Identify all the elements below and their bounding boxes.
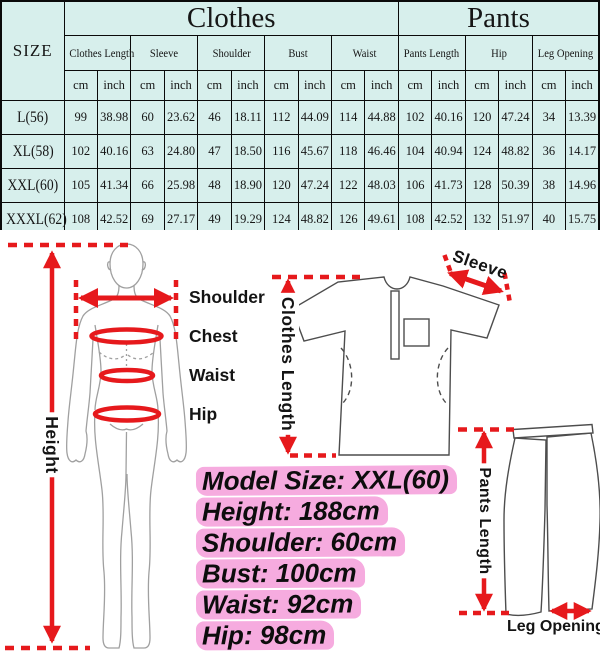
chest-label: Chest xyxy=(189,326,238,346)
unit-header: inch xyxy=(499,71,532,101)
body-crotch xyxy=(110,424,143,430)
table-row: XL(58) 102 40.16 63 24.80 47 18.50 116 4… xyxy=(1,135,599,169)
col-header-pants-length: Pants Length xyxy=(398,36,465,71)
cell: 124 xyxy=(465,135,498,169)
cell: 45.67 xyxy=(298,135,331,169)
shirt-placket xyxy=(391,291,399,359)
col-header-label: Hip xyxy=(491,46,507,61)
clothes-group-header: Clothes xyxy=(64,1,398,36)
cell: 44.88 xyxy=(365,101,398,135)
col-header-label: Shoulder xyxy=(212,46,250,61)
row-size-text: XXL(60) xyxy=(7,177,58,195)
pants-outline xyxy=(504,425,600,616)
waist-label: Waist xyxy=(189,365,235,385)
col-header-label: Bust xyxy=(288,46,307,61)
cell: 25.98 xyxy=(164,169,197,203)
unit-header: cm xyxy=(332,71,365,101)
unit-header: inch xyxy=(566,71,599,101)
cell: 41.34 xyxy=(97,169,130,203)
cell: 105 xyxy=(64,169,97,203)
cell: 46 xyxy=(198,101,231,135)
shirt-pocket xyxy=(404,319,429,346)
cell: 66 xyxy=(131,169,164,203)
col-header-label: Waist xyxy=(353,46,377,61)
col-header-bust: Bust xyxy=(265,36,332,71)
cell: 18.11 xyxy=(231,101,264,135)
unit-header: cm xyxy=(465,71,498,101)
pants-leg-left xyxy=(504,438,546,615)
cell: 40.94 xyxy=(432,135,465,169)
cell: 14.17 xyxy=(566,135,599,169)
cell: 60 xyxy=(131,101,164,135)
col-header-label: Pants Length xyxy=(404,46,459,61)
cell: 106 xyxy=(398,169,431,203)
pants-leg-right xyxy=(547,433,600,611)
cell: 23.62 xyxy=(164,101,197,135)
col-header-waist: Waist xyxy=(332,36,399,71)
size-chart-table: SIZE Clothes Pants Clothes Length Sleeve… xyxy=(0,0,600,238)
cell: 13.39 xyxy=(566,101,599,135)
clothes-length-label: Clothes Length xyxy=(277,293,299,435)
hip-label: Hip xyxy=(189,404,217,424)
unit-header: inch xyxy=(432,71,465,101)
cell: 120 xyxy=(465,101,498,135)
cell: 47 xyxy=(198,135,231,169)
table-unit-header-row: cm inch cm inch cm inch cm inch cm inch … xyxy=(1,71,599,101)
col-header-leg-opening: Leg Opening xyxy=(532,36,599,71)
cell: 38 xyxy=(532,169,565,203)
shirt-outline xyxy=(292,277,499,455)
size-column-header: SIZE xyxy=(1,1,64,101)
cell: 34 xyxy=(532,101,565,135)
unit-header: cm xyxy=(198,71,231,101)
unit-header: cm xyxy=(265,71,298,101)
cell: 47.24 xyxy=(298,169,331,203)
chest-ellipse xyxy=(92,330,162,343)
table-row: XXL(60) 105 41.34 66 25.98 48 18.90 120 … xyxy=(1,169,599,203)
unit-header: inch xyxy=(298,71,331,101)
row-size-text: XXXL(62) xyxy=(6,211,67,229)
cell: 63 xyxy=(131,135,164,169)
body-leg-right xyxy=(127,412,158,648)
model-info-line: Shoulder: 60cm xyxy=(196,527,405,557)
table-group-header-row: SIZE Clothes Pants xyxy=(1,1,599,36)
cell: 18.90 xyxy=(231,169,264,203)
col-header-shoulder: Shoulder xyxy=(198,36,265,71)
unit-header: cm xyxy=(64,71,97,101)
row-size-label: XL(58) xyxy=(1,135,64,169)
col-header-sleeve: Sleeve xyxy=(131,36,198,71)
unit-header: inch xyxy=(97,71,130,101)
unit-header: cm xyxy=(131,71,164,101)
shoulder-label: Shoulder xyxy=(189,287,265,307)
cell: 102 xyxy=(398,101,431,135)
cell: 114 xyxy=(332,101,365,135)
pants-length-label: Pants Length xyxy=(473,463,495,578)
cell: 120 xyxy=(265,169,298,203)
col-header-label: Sleeve xyxy=(150,46,178,61)
body-outline-figure xyxy=(67,244,187,648)
table-row: L(56) 99 38.98 60 23.62 46 18.11 112 44.… xyxy=(1,101,599,135)
col-header-hip: Hip xyxy=(465,36,532,71)
col-header-label: Clothes Length xyxy=(69,46,134,61)
row-size-text: L(56) xyxy=(17,109,48,127)
size-guide-image: SIZE Clothes Pants Clothes Length Sleeve… xyxy=(0,0,600,659)
model-info-line: Waist: 92cm xyxy=(196,589,361,619)
cell: 122 xyxy=(332,169,365,203)
unit-header: cm xyxy=(398,71,431,101)
unit-header: inch xyxy=(164,71,197,101)
cell: 104 xyxy=(398,135,431,169)
cell: 38.98 xyxy=(97,101,130,135)
unit-header: inch xyxy=(365,71,398,101)
row-size-label: XXL(60) xyxy=(1,169,64,203)
cell: 36 xyxy=(532,135,565,169)
model-info-line: Height: 188cm xyxy=(196,496,388,526)
cell: 128 xyxy=(465,169,498,203)
cell: 116 xyxy=(265,135,298,169)
unit-header: cm xyxy=(532,71,565,101)
col-header-label: Leg Opening xyxy=(538,46,593,61)
row-size-label: L(56) xyxy=(1,101,64,135)
unit-header: inch xyxy=(231,71,264,101)
cell: 48.03 xyxy=(365,169,398,203)
height-label: Height xyxy=(41,412,63,477)
measurement-diagram: Shoulder Chest Waist Hip Height Clothes … xyxy=(0,230,600,659)
body-head xyxy=(110,244,143,288)
model-info-line: Model Size: XXL(60) xyxy=(196,465,457,496)
waist-ellipse xyxy=(101,370,153,381)
model-info-line: Bust: 100cm xyxy=(196,558,365,588)
cell: 14.96 xyxy=(566,169,599,203)
cell: 44.09 xyxy=(298,101,331,135)
body-leg-left xyxy=(95,412,127,648)
pants-group-header: Pants xyxy=(398,1,599,36)
cell: 112 xyxy=(265,101,298,135)
col-header-clothes-length: Clothes Length xyxy=(64,36,131,71)
cell: 40.16 xyxy=(97,135,130,169)
cell: 48.82 xyxy=(499,135,532,169)
cell: 41.73 xyxy=(432,169,465,203)
table-measure-header-row: Clothes Length Sleeve Shoulder Bust Wais… xyxy=(1,36,599,71)
cell: 47.24 xyxy=(499,101,532,135)
cell: 40.16 xyxy=(432,101,465,135)
cell: 102 xyxy=(64,135,97,169)
cell: 46.46 xyxy=(365,135,398,169)
cell: 48 xyxy=(198,169,231,203)
row-size-text: XL(58) xyxy=(12,143,53,161)
model-info-line: Hip: 98cm xyxy=(196,621,334,651)
cell: 18.50 xyxy=(231,135,264,169)
cell: 118 xyxy=(332,135,365,169)
hip-ellipse xyxy=(95,408,159,421)
cell: 99 xyxy=(64,101,97,135)
cell: 50.39 xyxy=(499,169,532,203)
cell: 24.80 xyxy=(164,135,197,169)
model-info-block: Model Size: XXL(60) Height: 188cm Should… xyxy=(196,466,457,650)
leg-opening-label: Leg Opening xyxy=(507,617,600,637)
